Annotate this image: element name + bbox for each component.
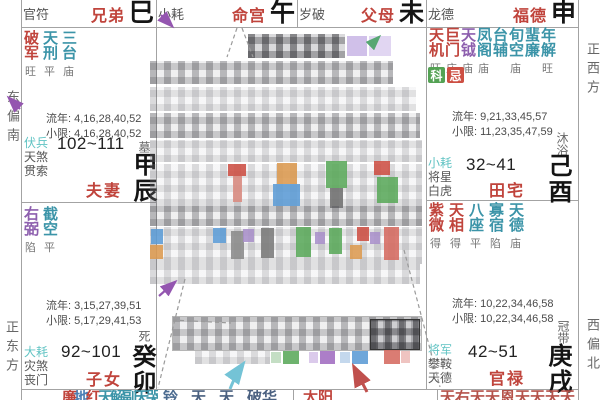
star-name: 三台	[61, 30, 76, 60]
star-brightness: 旺	[542, 60, 553, 72]
ziwei-chart: 官符 兄弟 巳 小耗 命宫 午 岁破 父母 未 龙德 福德 申 破军 旺 天刑 …	[0, 0, 600, 400]
branch-label: 未	[399, 0, 424, 27]
star-column: 天相 得	[448, 202, 463, 247]
children-xiaoxian: 小限: 5,17,29,41,53	[46, 312, 141, 328]
star-column: 截空 平	[42, 206, 57, 251]
palace-label: 兄弟	[91, 2, 125, 26]
career-liunian: 流年: 10,22,34,46,58	[452, 295, 554, 311]
star-column: 右弼 陷	[23, 206, 38, 251]
children-stem-branch: 癸卯	[129, 344, 153, 396]
star-column: 八座 平	[468, 202, 483, 247]
star-name: 廉	[62, 390, 74, 400]
career-xiaoxian: 小限: 10,22,34,46,58	[452, 310, 554, 326]
star-column: 年解 旺	[540, 27, 555, 72]
grid-line	[21, 0, 22, 400]
star-column: 旬空 庙	[508, 27, 523, 72]
god-label: 天德	[428, 371, 452, 385]
palace-label: 父母	[361, 2, 395, 26]
star-column: 天钺 庙	[460, 27, 475, 72]
sihua-badge: 忌	[447, 67, 464, 83]
star-name: 右弼	[23, 206, 38, 236]
children-liunian: 流年: 3,15,27,39,51	[46, 297, 141, 313]
year-god-label: 岁破	[299, 4, 325, 23]
career-palace-label: 官禄	[489, 365, 525, 389]
sihua-badge: 科	[428, 67, 445, 83]
property-age-range: 32~41	[466, 155, 516, 175]
branch-label: 巳	[129, 0, 154, 27]
header-cell-si: 官符 兄弟 巳	[23, 0, 154, 27]
star-name: 截空	[42, 206, 57, 236]
star-name: 天	[98, 390, 110, 400]
god-label: 天煞	[24, 150, 48, 164]
star-column: 寡宿 陷	[488, 202, 503, 247]
star-column: 天机 旺	[428, 27, 443, 72]
star-name: 天机	[428, 27, 443, 57]
god-label: 丧门	[24, 373, 48, 387]
property-stars: 天机 旺 巨门 庙 天钺 庙 凤阁 庙 台辅 旬空 庙 蜚廉 年解 旺	[428, 27, 555, 72]
spouse-liunian: 流年: 4,16,28,40,52	[46, 110, 141, 126]
grid-line	[578, 0, 579, 400]
god-label: 攀鞍	[428, 357, 452, 371]
spouse-age-range: 102~111	[57, 134, 125, 154]
grid-line	[293, 390, 294, 400]
star-name: 天德	[508, 202, 523, 232]
header-cell-wu: 小耗 命宫 午	[158, 0, 295, 27]
star-name: 天	[191, 390, 206, 400]
star-brightness: 陷	[25, 239, 36, 251]
star-name: 台辅	[492, 27, 507, 57]
property-stem-branch: 己酉	[545, 153, 569, 205]
year-god-label: 官符	[23, 4, 49, 23]
star-brightness: 得	[430, 235, 441, 247]
children-age-range: 92~101	[61, 342, 121, 362]
god-label: 贯索	[24, 164, 48, 178]
career-stage-label: 冠带	[557, 320, 569, 344]
star-brightness: 庙	[63, 63, 74, 75]
bottom-sliver-4: 天右天天恩天天天天	[440, 390, 575, 400]
bottom-sliver-3: 太阳	[303, 390, 333, 400]
children-stars: 右弼 陷 截空 平	[23, 206, 57, 251]
god-label: 大耗	[24, 345, 48, 359]
star-name: 地	[74, 390, 86, 400]
star-name: 蜚廉	[524, 27, 539, 57]
year-god-label: 小耗	[158, 4, 184, 23]
bottom-sliver-2: 铃天天破华	[163, 390, 277, 400]
bottom-sliver-1: 廉地红天解副天哭	[62, 390, 158, 400]
star-name: 凤阁	[476, 27, 491, 57]
property-sihua-badges: 科忌	[428, 67, 464, 83]
branch-label: 申	[551, 0, 576, 27]
star-name: 解	[110, 390, 122, 400]
star-column: 蜚廉	[524, 27, 539, 72]
god-label: 将军	[428, 343, 452, 357]
star-column: 天刑 平	[42, 30, 57, 75]
star-name: 红	[86, 390, 98, 400]
children-stage-label: 死	[138, 330, 150, 342]
direction-label-east: 正东方	[2, 320, 21, 377]
star-column: 破军 旺	[23, 30, 38, 75]
star-column: 巨门 庙	[444, 27, 459, 72]
grid-line	[297, 0, 298, 27]
property-gods: 小耗将星白虎	[428, 156, 452, 198]
grid-line	[426, 0, 427, 390]
star-brightness: 平	[470, 235, 481, 247]
star-name: 天刑	[42, 30, 57, 60]
star-name: 哭	[146, 390, 158, 400]
star-name: 天相	[448, 202, 463, 232]
star-brightness: 庙	[510, 235, 521, 247]
god-label: 伏兵	[24, 136, 48, 150]
star-name: 天右天天恩天天天天	[440, 390, 575, 400]
star-name: 年解	[540, 27, 555, 57]
star-column: 天德 庙	[508, 202, 523, 247]
star-name: 铃	[163, 390, 178, 400]
star-brightness: 平	[44, 63, 55, 75]
star-brightness: 得	[450, 235, 461, 247]
spouse-palace-label: 夫妻	[86, 177, 122, 201]
header-cell-shen: 龙德 福德 申	[428, 0, 576, 27]
god-label: 白虎	[428, 184, 452, 198]
spouse-stars: 破军 旺 天刑 平 三台 庙	[23, 30, 76, 75]
grid-line	[437, 390, 438, 400]
star-brightness: 庙	[478, 60, 489, 72]
star-name: 紫微	[428, 202, 443, 232]
star-name: 破军	[23, 30, 38, 60]
direction-label-west-north: 西偏北	[583, 318, 600, 375]
palace-label: 福德	[513, 2, 547, 26]
cyan-arrow	[230, 364, 243, 389]
god-label: 小耗	[428, 156, 452, 170]
star-name: 旬空	[508, 27, 523, 57]
palace-label: 命宫	[232, 2, 266, 26]
star-name: 八座	[468, 202, 483, 232]
career-gods: 将军攀鞍天德	[428, 343, 452, 385]
star-name: 破华	[247, 390, 277, 400]
star-name: 副	[122, 390, 134, 400]
spouse-gods: 伏兵天煞贯索	[24, 136, 48, 178]
star-column: 台辅	[492, 27, 507, 72]
god-label: 将星	[428, 170, 452, 184]
god-label: 灾煞	[24, 359, 48, 373]
star-name: 巨门	[444, 27, 459, 57]
property-liunian: 流年: 9,21,33,45,57	[452, 108, 547, 124]
career-stars: 紫微 得 天相 得 八座 平 寡宿 陷 天德 庙	[428, 202, 523, 247]
star-name: 天钺	[460, 27, 475, 57]
property-palace-label: 田宅	[489, 177, 525, 201]
star-column: 凤阁 庙	[476, 27, 491, 72]
branch-label: 午	[270, 0, 295, 27]
direction-label-east-south: 东偏南	[3, 90, 22, 147]
children-gods: 大耗灾煞丧门	[24, 345, 48, 387]
direction-label-west: 正西方	[583, 42, 600, 99]
property-xiaoxian: 小限: 11,23,35,47,59	[452, 123, 553, 139]
star-name: 天	[219, 390, 234, 400]
star-name: 天	[134, 390, 146, 400]
star-column: 三台 庙	[61, 30, 76, 75]
star-name: 太阳	[303, 390, 333, 400]
star-column: 紫微 得	[428, 202, 443, 247]
star-name: 寡宿	[488, 202, 503, 232]
header-cell-wei: 岁破 父母 未	[299, 0, 424, 27]
career-age-range: 42~51	[468, 342, 518, 362]
career-stem-branch: 庚戌	[545, 343, 569, 395]
star-brightness: 庙	[510, 60, 521, 72]
star-brightness: 平	[44, 239, 55, 251]
star-brightness: 陷	[490, 235, 501, 247]
children-palace-label: 子女	[86, 366, 122, 390]
star-brightness: 旺	[25, 63, 36, 75]
year-god-label: 龙德	[428, 4, 454, 23]
